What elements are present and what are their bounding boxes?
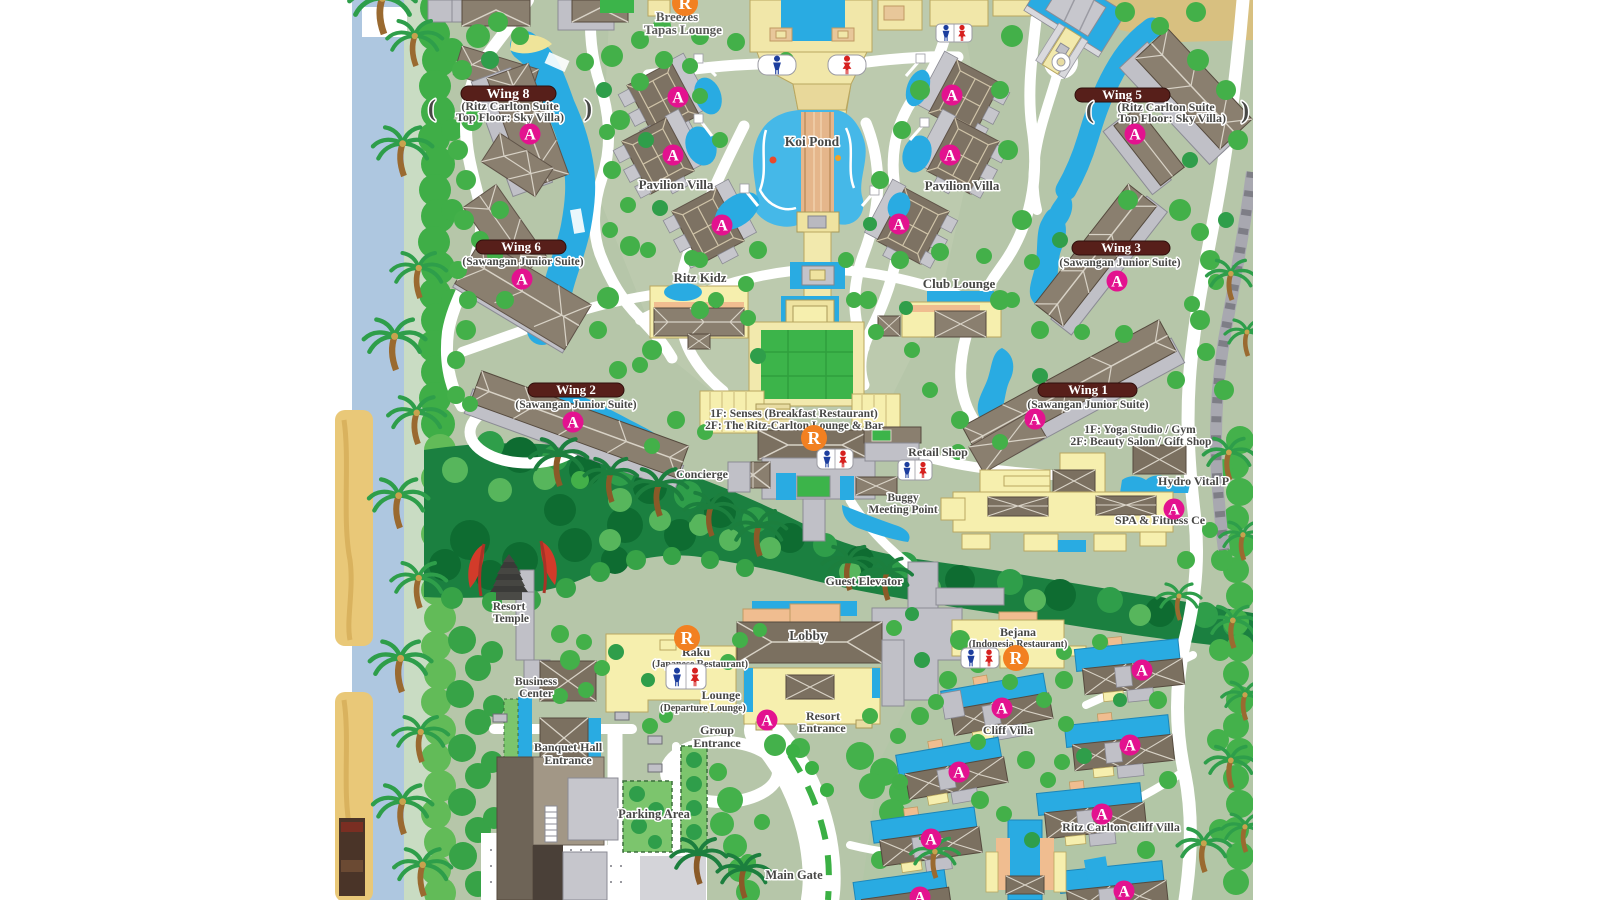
- svg-text:(: (: [1086, 98, 1094, 124]
- svg-text:Pavilion Villa: Pavilion Villa: [925, 178, 1000, 193]
- svg-text:Meeting Point: Meeting Point: [868, 504, 937, 516]
- svg-text:Resort: Resort: [493, 601, 526, 613]
- svg-text:Temple: Temple: [493, 613, 529, 625]
- svg-text:Entrance: Entrance: [798, 721, 846, 735]
- svg-text:Wing 1: Wing 1: [1068, 382, 1108, 397]
- svg-text:Hydro Vital P: Hydro Vital P: [1158, 474, 1229, 488]
- svg-text:Group: Group: [700, 723, 734, 737]
- svg-text:Buggy: Buggy: [887, 492, 919, 504]
- svg-text:Business: Business: [515, 676, 558, 688]
- svg-text:Banquet Hall: Banquet Hall: [534, 740, 603, 754]
- svg-text:Main Gate: Main Gate: [765, 868, 823, 882]
- svg-text:Guest Elevator: Guest Elevator: [826, 574, 904, 588]
- svg-text:Concierge: Concierge: [676, 467, 729, 481]
- svg-text:Koi Pond: Koi Pond: [785, 134, 840, 149]
- svg-text:(: (: [428, 96, 436, 122]
- svg-text:): ): [1241, 98, 1249, 124]
- svg-text:Center: Center: [519, 688, 553, 700]
- svg-text:2F: Beauty Salon / Gift Shop: 2F: Beauty Salon / Gift Shop: [1071, 436, 1212, 448]
- svg-text:Lobby: Lobby: [789, 628, 827, 643]
- svg-text:Wing 6: Wing 6: [501, 239, 541, 254]
- svg-text:Bejana: Bejana: [1000, 625, 1036, 639]
- svg-text:Top Floor: Sky Villa): Top Floor: Sky Villa): [456, 110, 564, 124]
- svg-text:): ): [584, 96, 592, 122]
- svg-text:(Sawangan Junior Suite): (Sawangan Junior Suite): [1027, 399, 1148, 411]
- svg-text:Cliff Villa: Cliff Villa: [983, 723, 1033, 737]
- svg-text:2F: The Ritz-Carlton Lounge &: 2F: The Ritz-Carlton Lounge & Bar: [705, 420, 883, 432]
- svg-text:Parking Area: Parking Area: [618, 807, 690, 821]
- svg-text:Entrance: Entrance: [544, 753, 592, 767]
- svg-text:(Sawangan Junior Suite): (Sawangan Junior Suite): [462, 256, 583, 268]
- svg-text:(Sawangan Junior Suite): (Sawangan Junior Suite): [515, 399, 636, 411]
- svg-text:(Sawangan Junior Suite): (Sawangan Junior Suite): [1059, 257, 1180, 269]
- svg-text:SPA & Fitness Ce: SPA & Fitness Ce: [1115, 513, 1206, 527]
- svg-text:Lounge: Lounge: [702, 688, 741, 702]
- svg-text:Tapas Lounge: Tapas Lounge: [644, 22, 722, 37]
- svg-text:Wing 2: Wing 2: [556, 382, 596, 397]
- svg-text:Entrance: Entrance: [693, 736, 741, 750]
- svg-text:Top Floor: Sky Villa): Top Floor: Sky Villa): [1118, 111, 1226, 125]
- svg-text:Club Lounge: Club Lounge: [923, 276, 996, 291]
- svg-text:Ritz Carlton Cliff Villa: Ritz Carlton Cliff Villa: [1062, 820, 1180, 834]
- svg-text:Pavilion Villa: Pavilion Villa: [639, 177, 714, 192]
- svg-text:Ritz Kidz: Ritz Kidz: [673, 270, 726, 285]
- svg-text:1F: Yoga Studio / Gym: 1F: Yoga Studio / Gym: [1084, 424, 1196, 436]
- svg-text:1F: Senses (Breakfast Restaura: 1F: Senses (Breakfast Restaurant): [710, 408, 878, 420]
- svg-text:Retail Shop: Retail Shop: [908, 445, 968, 459]
- svg-text:Wing 3: Wing 3: [1101, 240, 1141, 255]
- svg-text:(Departure Lounge): (Departure Lounge): [660, 703, 746, 714]
